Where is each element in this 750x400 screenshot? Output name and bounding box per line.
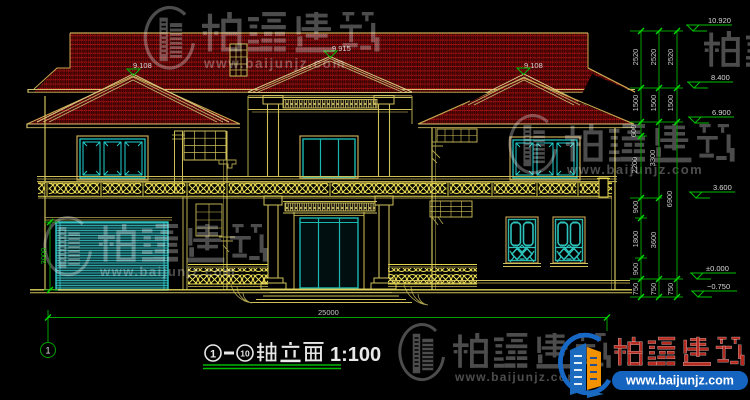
svg-text:1:100: 1:100: [330, 344, 381, 366]
svg-text:www.baijunjz.com: www.baijunjz.com: [99, 264, 236, 279]
svg-text:1500: 1500: [649, 95, 658, 112]
svg-text:1: 1: [210, 349, 216, 361]
svg-text:www.baijunjz.com: www.baijunjz.com: [203, 56, 346, 71]
svg-text:900: 900: [631, 263, 640, 276]
svg-text:750: 750: [666, 283, 675, 296]
svg-text:−0.750: −0.750: [707, 282, 730, 291]
svg-text:25000: 25000: [318, 308, 339, 317]
svg-text:2520: 2520: [666, 49, 675, 66]
svg-text:1800: 1800: [631, 231, 640, 248]
svg-text:1500: 1500: [666, 95, 675, 112]
svg-text:10.920: 10.920: [708, 16, 731, 25]
svg-text:8.400: 8.400: [711, 73, 730, 82]
svg-text:750: 750: [649, 283, 658, 296]
svg-text:1: 1: [45, 346, 50, 356]
svg-text:2520: 2520: [649, 49, 658, 66]
svg-text:3000: 3000: [39, 248, 48, 265]
svg-text:1500: 1500: [631, 95, 640, 112]
svg-text:6.900: 6.900: [712, 108, 731, 117]
svg-text:±0.000: ±0.000: [706, 264, 729, 273]
svg-text:6900: 6900: [665, 191, 674, 208]
svg-text:2200: 2200: [630, 157, 639, 174]
svg-text:9.108: 9.108: [524, 61, 543, 70]
svg-text:10: 10: [240, 349, 250, 359]
svg-text:750: 750: [631, 283, 640, 296]
svg-text:3600: 3600: [649, 232, 658, 249]
svg-text:3.600: 3.600: [713, 183, 732, 192]
svg-text:600: 600: [629, 125, 638, 138]
svg-text:900: 900: [631, 201, 640, 214]
svg-text:www.baijunjz.com: www.baijunjz.com: [625, 374, 734, 388]
svg-text:2520: 2520: [631, 49, 640, 66]
svg-text:3300: 3300: [648, 150, 657, 167]
